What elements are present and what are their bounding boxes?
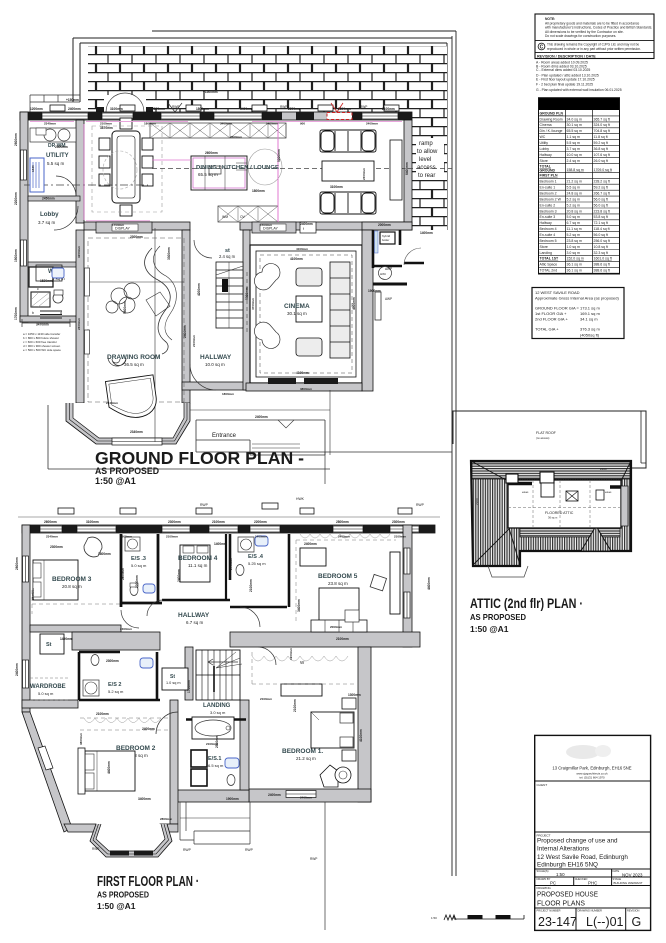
svg-text:b: b [32,311,34,315]
svg-text:BEDROOM 1.: BEDROOM 1. [282,748,323,755]
svg-text:2100mm: 2100mm [260,697,272,701]
svg-text:2300mm: 2300mm [130,235,143,239]
svg-text:1:50 @A1: 1:50 @A1 [95,476,136,486]
svg-text:c: c [37,287,39,291]
svg-text:GROUND PLN: GROUND PLN [540,111,564,115]
svg-text:WM: WM [222,215,228,219]
svg-text:20.8 sq m: 20.8 sq m [62,584,82,589]
svg-text:G: G [632,915,642,929]
svg-text:20.8 sq m: 20.8 sq m [567,209,582,213]
svg-text:access: access [417,165,436,171]
svg-text:2450mm: 2450mm [42,197,55,201]
svg-text:1500mm: 1500mm [260,223,272,227]
svg-text:2340mm: 2340mm [44,122,56,126]
svg-text:Hallway: Hallway [540,153,553,157]
svg-text:2340mm: 2340mm [46,535,58,539]
svg-text:GROUND: GROUND [540,168,556,172]
svg-text:2100mm: 2100mm [100,122,112,126]
svg-text:(no access): (no access) [536,436,550,440]
svg-text:266.7 sq ft: 266.7 sq ft [594,192,610,196]
svg-text:Edinburgh EH16 5NQ: Edinburgh EH16 5NQ [537,862,598,869]
svg-text:DISPLAY: DISPLAY [263,227,279,231]
svg-text:1200mm: 1200mm [30,107,43,111]
svg-text:3200mm: 3200mm [77,246,81,258]
svg-text:RWP: RWP [245,848,254,852]
svg-text:2100mm: 2100mm [336,637,349,641]
svg-text:boiler: boiler [382,238,389,242]
svg-text:Lobby: Lobby [540,147,550,151]
svg-text:DRAWN BY: DRAWN BY [537,877,551,881]
svg-text:2100mm: 2100mm [382,107,395,111]
svg-text:65.5 sq m: 65.5 sq m [198,172,218,177]
svg-text:2300mm: 2300mm [168,520,181,524]
svg-text:OV: OV [240,215,246,219]
svg-text:to allow: to allow [417,149,438,155]
svg-text:2400mm: 2400mm [68,107,81,111]
svg-text:AS PROPOSED: AS PROPOSED [97,890,149,900]
svg-text:E/S.1: E/S.1 [208,756,221,762]
svg-text:UTILITY: UTILITY [46,153,69,159]
svg-text:Lobby: Lobby [40,211,59,218]
svg-text:ramp: ramp [419,141,433,147]
svg-text:2400mm: 2400mm [300,796,312,800]
svg-text:2400mm: 2400mm [15,663,19,676]
svg-text:C: C [540,45,544,51]
svg-text:Do not scale drawings for cons: Do not scale drawings for construction p… [545,34,616,38]
svg-text:2100mm: 2100mm [394,535,406,539]
svg-text:388.6 sq ft: 388.6 sq ft [594,269,610,273]
svg-text:5800mm: 5800mm [123,301,127,314]
svg-text:1800mm: 1800mm [144,122,156,126]
svg-text:1430: 1430 [31,165,35,172]
svg-text:1800mm: 1800mm [98,552,111,556]
svg-text:BEDROOM 5: BEDROOM 5 [318,573,358,580]
svg-text:PHC: PHC [588,881,597,886]
svg-text:13 Craigmillar Park, Edinburgh: 13 Craigmillar Park, Edinburgh, EH16 5NE [552,766,631,771]
svg-text:1.1 sq m: 1.1 sq m [567,135,581,139]
svg-text:388.6 sq ft: 388.6 sq ft [594,263,610,267]
svg-text:256.0 sq ft: 256.0 sq ft [594,239,610,243]
svg-text:3.7 sq m: 3.7 sq m [38,220,56,225]
svg-text:72.1 sq ft: 72.1 sq ft [594,221,608,225]
svg-text:HALLWAY: HALLWAY [178,612,210,619]
svg-text:Bedroom 2 W: Bedroom 2 W [540,197,562,201]
svg-text:324.0 sq ft: 324.0 sq ft [594,123,610,127]
svg-text:365.7 sq ft: 365.7 sq ft [594,117,610,121]
svg-text:Din / K./lounge: Din / K./lounge [540,129,563,133]
svg-text:1900mm: 1900mm [368,289,381,293]
svg-text:59.2 sq ft: 59.2 sq ft [594,186,608,190]
svg-text:+150mm: +150mm [66,98,79,102]
svg-text:This drawing remains the Copyr: This drawing remains the Copyright of CJ… [547,43,639,47]
svg-text:5200mm: 5200mm [277,149,281,162]
svg-text:2300mm: 2300mm [50,545,63,549]
svg-text:2600mm: 2600mm [44,520,57,524]
svg-text:4100mm: 4100mm [296,247,308,251]
svg-text:1600mm: 1600mm [120,535,132,539]
svg-text:11.1 sq m: 11.1 sq m [188,563,208,568]
svg-text:2700mm: 2700mm [229,558,233,570]
svg-text:level: level [419,157,431,163]
svg-text:2400mm: 2400mm [338,535,350,539]
svg-text:AWP: AWP [385,267,392,271]
svg-text:12 West Savile Road, Edinburgh: 12 West Savile Road, Edinburgh [537,854,628,861]
svg-text:F - 2 bed plan final update 1: F - 2 bed plan final update 19.11.2025 [536,83,593,87]
svg-text:L(--)01: L(--)01 [586,915,624,929]
svg-text:2340mm: 2340mm [106,401,118,405]
svg-text:5.0 sq m: 5.0 sq m [567,215,581,219]
svg-text:2300mm: 2300mm [120,627,132,631]
svg-text:59.2 sq ft: 59.2 sq ft [594,141,608,145]
svg-text:DRAWING ROOM: DRAWING ROOM [107,354,160,361]
svg-text:RWP: RWP [310,857,317,861]
svg-text:2200mm: 2200mm [254,520,267,524]
svg-text:118.4 sq ft: 118.4 sq ft [594,227,610,231]
svg-text:E - First floor layout update: E - First floor layout update 17.10.2025 [536,77,595,81]
svg-text:1520mm: 1520mm [40,279,53,283]
svg-text:6.7 sq m: 6.7 sq m [186,620,204,625]
svg-text:30.1 sq m: 30.1 sq m [287,311,307,316]
svg-text:23-147: 23-147 [538,915,577,929]
svg-text:DATE: DATE [613,869,620,873]
svg-text:TOTAL 1ST: TOTAL 1ST [540,257,560,261]
svg-text:11.8 sq ft: 11.8 sq ft [594,135,608,139]
svg-text:AS PROPOSED: AS PROPOSED [470,612,526,622]
svg-text:E/S 2: E/S 2 [108,682,121,688]
svg-text:5.5 sq m: 5.5 sq m [567,141,581,145]
svg-text:BUILDING WARRANT: BUILDING WARRANT [614,881,643,885]
svg-text:eaves: eaves [522,491,529,494]
svg-text:53.8 sq ft: 53.8 sq ft [594,215,608,219]
svg-text:WC: WC [540,135,546,139]
svg-text:RWP: RWP [360,105,367,109]
svg-text:WARDROBE: WARDROBE [30,684,66,690]
svg-text:e = 500 x 500 WC side space: e = 500 x 500 WC side space [23,348,61,352]
svg-text:1st FLOOR GIA +: 1st FLOOR GIA + [535,311,567,316]
svg-text:1800mm: 1800mm [222,392,234,396]
svg-text:2000mm: 2000mm [330,625,342,629]
svg-text:HWt: HWt [380,272,386,276]
svg-text:21.2 sq m: 21.2 sq m [296,756,316,761]
svg-text:2400mm: 2400mm [300,222,313,226]
svg-text:REVISION: REVISION [627,909,640,913]
svg-text:704.8 sq ft: 704.8 sq ft [594,129,610,133]
svg-text:2400mm: 2400mm [177,569,181,582]
svg-text:12 WEST SAVILE ROAD: 12 WEST SAVILE ROAD [535,290,580,295]
svg-text:NOV 2023: NOV 2023 [622,872,643,877]
svg-text:2800mm: 2800mm [160,817,172,821]
svg-text:2200mm: 2200mm [135,575,139,588]
svg-text:3.7 sq m: 3.7 sq m [567,147,581,151]
svg-text:Bedroom 4: Bedroom 4 [540,227,557,231]
svg-text:4100mm: 4100mm [359,729,363,742]
svg-text:FIRST PLN: FIRST PLN [540,174,559,178]
svg-text:1400mm: 1400mm [255,535,267,539]
svg-text:TOTAL 2nd: TOTAL 2nd [540,269,558,273]
svg-text:1900mm: 1900mm [14,249,18,262]
svg-text:reproduced in whole or in any: reproduced in whole or in any part witho… [547,47,641,51]
svg-text:3300mm: 3300mm [167,247,171,260]
svg-text:900: 900 [300,122,305,126]
svg-text:169.1 sq m: 169.1 sq m [580,311,600,316]
svg-text:Proposed change of use and: Proposed change of use and [537,838,618,845]
svg-text:BEDROOM 4: BEDROOM 4 [178,555,218,562]
svg-text:2400mm: 2400mm [268,793,281,797]
svg-text:2400mm: 2400mm [77,318,81,330]
svg-text:En-suite 4: En-suite 4 [540,233,556,237]
svg-text:AWP: AWP [385,297,392,301]
svg-text:2800mm: 2800mm [336,520,349,524]
svg-text:10.0 sq m: 10.0 sq m [205,362,225,367]
svg-text:2100mm: 2100mm [212,520,225,524]
svg-text:f: f [303,227,304,231]
svg-text:RWP: RWP [172,105,179,109]
svg-text:158.8 sq m: 158.8 sq m [567,168,584,172]
svg-text:Landing: Landing [540,251,553,255]
svg-text:2800mm: 2800mm [121,568,125,580]
svg-text:152.0 sq m: 152.0 sq m [567,257,584,261]
svg-text:RWP: RWP [92,847,99,851]
svg-text:FLOOR PLANS: FLOOR PLANS [537,899,585,908]
svg-text:2600mm: 2600mm [205,151,218,155]
svg-text:2800mm: 2800mm [15,557,19,570]
svg-text:3100mm: 3100mm [110,107,123,111]
svg-text:RWP: RWP [416,503,425,507]
svg-text:2nd FLOOR GIA +: 2nd FLOOR GIA + [535,317,568,322]
svg-text:2400mm: 2400mm [142,727,155,731]
svg-text:3470mm: 3470mm [36,323,49,327]
svg-text:36 sq m: 36 sq m [548,516,557,520]
svg-text:6400mm: 6400mm [405,162,409,175]
svg-text:2300mm: 2300mm [392,520,405,524]
svg-text:FIRST FLOOR PLAN ·: FIRST FLOOR PLAN · [97,874,199,890]
svg-text:1700mm: 1700mm [14,307,18,320]
svg-text:Bedroom 2: Bedroom 2 [540,192,557,196]
svg-text:23.8 sq m: 23.8 sq m [328,581,348,586]
svg-text:2100mm: 2100mm [96,712,109,716]
svg-text:SCALE(S): SCALE(S) [537,869,549,873]
svg-text:56.0 sq ft: 56.0 sq ft [594,197,608,201]
svg-text:5.5 sq m: 5.5 sq m [47,161,65,166]
svg-text:4200mm: 4200mm [197,283,201,296]
svg-text:6.5 sq m: 6.5 sq m [208,763,224,768]
svg-text:26.0 sq ft: 26.0 sq ft [594,159,608,163]
svg-text:32.3 sq ft: 32.3 sq ft [594,251,608,255]
svg-text:1:50 @A1: 1:50 @A1 [470,624,509,634]
svg-text:30.1 sq m: 30.1 sq m [567,123,582,127]
svg-text:+1500mm: +1500mm [203,90,218,94]
svg-text:3800mm: 3800mm [79,733,83,745]
svg-text:PROJECT NUMBER: PROJECT NUMBER [537,909,561,913]
svg-text:1400mm: 1400mm [60,637,73,641]
svg-text:ATTIC (2nd flr) PLAN ·: ATTIC (2nd flr) PLAN · [470,596,583,611]
svg-text:34.0 sq m: 34.0 sq m [567,117,582,121]
svg-text:1900mm: 1900mm [226,797,239,801]
svg-text:2300mm: 2300mm [106,659,119,663]
svg-text:DISPLAY: DISPLAY [115,227,131,231]
svg-text:376.3 sq m: 376.3 sq m [580,327,600,332]
svg-text:2600mm: 2600mm [230,135,242,139]
svg-text:Drawing Room: Drawing Room [540,117,563,121]
svg-text:1700mm: 1700mm [112,223,124,227]
svg-text:1700mm: 1700mm [187,680,191,693]
svg-text:CHECKED: CHECKED [575,877,588,881]
svg-text:2000mm: 2000mm [378,223,391,227]
svg-text:GROUND FLOOR GIA =: GROUND FLOOR GIA = [535,306,580,311]
svg-text:Bedroom 5: Bedroom 5 [540,239,557,243]
svg-text:3400mm: 3400mm [240,107,253,111]
svg-text:Internal Alterations: Internal Alterations [537,846,589,853]
svg-text:Bedroom 3: Bedroom 3 [540,209,557,213]
svg-text:HALLWAY: HALLWAY [200,354,232,361]
svg-text:Utility: Utility [540,141,549,145]
svg-text:56.0 sq ft: 56.0 sq ft [594,203,608,207]
svg-text:1:50: 1:50 [556,872,565,877]
svg-text:1400mm: 1400mm [214,542,227,546]
svg-text:3400mm: 3400mm [138,797,151,801]
svg-text:2400mm: 2400mm [183,325,187,338]
svg-text:E/S .4: E/S .4 [248,554,264,560]
svg-text:173.1 sq m: 173.1 sq m [580,306,600,311]
svg-text:1:50: 1:50 [431,916,437,920]
svg-text:34.1 sq m: 34.1 sq m [580,317,598,322]
svg-text:2100mm: 2100mm [166,535,178,539]
svg-text:GROUND FLOOR PLAN -: GROUND FLOOR PLAN - [95,448,304,468]
svg-text:5.0 sq m: 5.0 sq m [131,563,147,568]
svg-text:1400mm: 1400mm [420,231,433,235]
svg-text:23.8 sq m: 23.8 sq m [567,239,582,243]
svg-text:3400mm: 3400mm [31,588,35,600]
svg-text:2100mm: 2100mm [206,742,218,746]
svg-text:Approximate Gross Internal Are: Approximate Gross Internal Area (as prop… [535,296,619,301]
svg-text:En-suite 1: En-suite 1 [540,186,556,190]
svg-text:3.0 sq m: 3.0 sq m [567,251,581,255]
svg-text:2400mm: 2400mm [255,415,268,419]
svg-text:1601.0 sq ft: 1601.0 sq ft [594,257,612,261]
svg-text:(4050sq ft): (4050sq ft) [580,333,600,338]
svg-text:3400mm: 3400mm [220,122,232,126]
svg-text:2.4 sq m: 2.4 sq m [219,254,236,259]
svg-text:PROPOSED HOUSE: PROPOSED HOUSE [537,890,598,899]
svg-text:1:50 @A1: 1:50 @A1 [97,901,136,911]
svg-text:11.1 sq m: 11.1 sq m [567,227,582,231]
svg-text:2400mm: 2400mm [366,122,378,126]
svg-text:65.5 sq m: 65.5 sq m [567,129,582,133]
svg-text:E/S .3: E/S .3 [131,556,146,562]
svg-text:Entrance: Entrance [212,433,237,439]
svg-text:21.2 sq m: 21.2 sq m [567,180,582,184]
svg-text:En-suite 3: En-suite 3 [540,215,556,219]
svg-text:RWP: RWP [200,503,209,507]
svg-text:36.8 sq ft: 36.8 sq ft [594,147,608,151]
svg-text:2100mm: 2100mm [249,579,253,592]
svg-text:1.0 sq m: 1.0 sq m [567,245,581,249]
svg-text:1900mm: 1900mm [289,648,293,660]
svg-text:1300mm: 1300mm [348,693,361,697]
svg-text:NOTE:: NOTE: [545,17,555,21]
svg-text:2340mm: 2340mm [130,430,143,434]
svg-text:1709.0 sq ft: 1709.0 sq ft [594,168,612,172]
svg-text:4100mm: 4100mm [296,371,309,375]
svg-text:3.0 sq m: 3.0 sq m [210,710,226,715]
svg-text:REVISION / DESCRIPTION / D: REVISION / DESCRIPTION / DATE [537,54,596,58]
svg-text:2100mm: 2100mm [192,335,196,347]
svg-text:Bedroom 1: Bedroom 1 [540,180,557,184]
svg-text:3100mm: 3100mm [86,520,99,524]
svg-text:5300mm: 5300mm [245,287,249,300]
svg-text:2400mm: 2400mm [304,542,317,546]
svg-text:5.2 sq m: 5.2 sq m [567,197,581,201]
svg-text:FLAT ROOF: FLAT ROOF [536,431,557,435]
svg-text:HWK: HWK [296,497,305,501]
svg-text:G - Plan updated with external: G - Plan updated with external wall insu… [536,88,622,92]
svg-text:223.8 sq ft: 223.8 sq ft [594,209,610,213]
svg-text:5.2 sq m: 5.2 sq m [108,689,124,694]
svg-text:1800mm: 1800mm [252,189,265,193]
svg-text:3800mm: 3800mm [300,387,312,391]
svg-text:1400mm: 1400mm [266,122,278,126]
svg-text:4900mm: 4900mm [352,297,356,310]
svg-text:36.1 sq m: 36.1 sq m [567,263,582,267]
svg-text:2800mm: 2800mm [338,107,351,111]
svg-text:LANDING: LANDING [203,703,231,709]
svg-text:3870mm: 3870mm [100,126,113,130]
svg-text:Cinema: Cinema [540,123,552,127]
svg-text:CLIENT: CLIENT [537,783,548,787]
svg-text:2300mm: 2300mm [55,145,68,149]
svg-text:2100mm: 2100mm [293,699,297,712]
svg-text:4400mm: 4400mm [107,761,111,774]
svg-text:2200mm: 2200mm [288,107,301,111]
svg-text:56.0 sq ft: 56.0 sq ft [594,233,608,237]
svg-text:tel: (0)131 664 1970: tel: (0)131 664 1970 [579,776,604,780]
svg-text:eaves: eaves [605,491,612,494]
svg-text:DINING / KITCHEN / LOUNGE: DINING / KITCHEN / LOUNGE [196,165,279,171]
svg-text:CINEMA: CINEMA [284,303,310,310]
svg-text:228.2 sq ft: 228.2 sq ft [594,180,610,184]
svg-text:to rear: to rear [418,173,435,179]
svg-text:TOTAL GIA +: TOTAL GIA + [535,327,559,332]
svg-text:2300: 2300 [475,498,479,505]
svg-text:3100mm: 3100mm [330,185,343,189]
svg-text:5.2 sq m: 5.2 sq m [567,203,581,207]
svg-text:St: St [46,642,52,648]
svg-text:RWP: RWP [280,105,287,109]
svg-text:C - External dims added 03.10: C - External dims added 03.10.2025 [536,68,590,72]
svg-text:6.7 sq m: 6.7 sq m [567,221,581,225]
svg-text:2300mm: 2300mm [152,107,165,111]
svg-text:1800mm: 1800mm [196,107,209,111]
svg-text:PC: PC [550,881,556,886]
svg-text:2200mm: 2200mm [14,192,18,205]
svg-text:4400mm: 4400mm [427,577,431,590]
svg-text:3400mm: 3400mm [297,599,301,612]
svg-text:36.1 sq m: 36.1 sq m [567,269,582,273]
svg-text:BEDROOM 3: BEDROOM 3 [52,576,92,583]
svg-text:2600mm: 2600mm [14,133,18,146]
svg-text:2300mm: 2300mm [362,168,366,180]
svg-text:36.5 sq m: 36.5 sq m [124,362,144,367]
svg-text:5.5 sq m: 5.5 sq m [567,186,581,190]
svg-text:2.4 sq m: 2.4 sq m [567,159,581,163]
svg-text:107.6 sq ft: 107.6 sq ft [594,153,610,157]
svg-text:4100mm: 4100mm [290,257,303,261]
svg-text:Attic Space: Attic Space [540,263,558,267]
svg-text:RWP: RWP [183,848,192,852]
svg-text:24.8 sq m: 24.8 sq m [567,192,582,196]
svg-text:Hallway: Hallway [540,221,553,225]
svg-text:En-suite 2: En-suite 2 [540,203,556,207]
